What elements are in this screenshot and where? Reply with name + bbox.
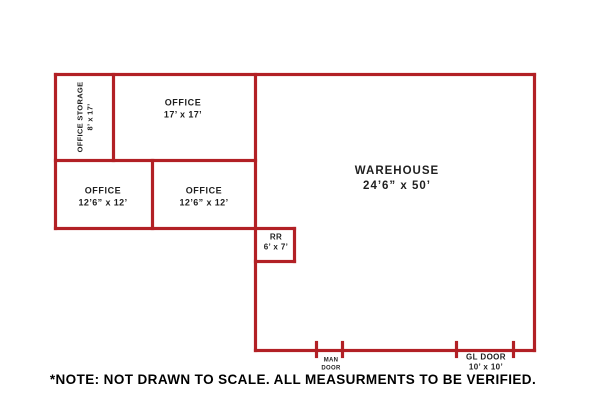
floor-plan-canvas: OFFICE STORAGE 8’ x 17’ OFFICE 17’ x 17’… [0, 0, 600, 400]
room-name: OFFICE [79, 185, 128, 197]
man-door-label: MAN DOOR [321, 358, 340, 373]
room-dims: 6’ x 7’ [264, 243, 289, 253]
room-label-office-storage: OFFICE STORAGE 8’ x 17’ [75, 82, 95, 153]
room-label-restroom: RR 6’ x 7’ [264, 233, 289, 254]
room-name: OFFICE STORAGE [75, 82, 85, 153]
wall-warehouse-bottom [254, 349, 536, 352]
wall-warehouse-left [254, 73, 257, 352]
room-dims: 12’6” x 12’ [180, 197, 229, 209]
wall-left [54, 73, 57, 230]
gl-door-tick-right [512, 341, 515, 358]
room-label-office-large: OFFICE 17’ x 17’ [164, 97, 202, 120]
man-door-tick-right [341, 341, 344, 358]
wall-warehouse-right [533, 73, 536, 352]
room-dims: 8’ x 17’ [85, 82, 95, 153]
room-name: WAREHOUSE [355, 164, 439, 179]
room-dims: 12’6” x 12’ [79, 197, 128, 209]
wall-storage-divider [112, 73, 115, 162]
room-name: OFFICE [164, 97, 202, 109]
room-dims: 17’ x 17’ [164, 109, 202, 121]
gl-door-line1: GL DOOR [466, 353, 506, 363]
room-name: RR [264, 233, 289, 243]
room-label-office-right: OFFICE 12’6” x 12’ [180, 185, 229, 208]
room-label-office-left: OFFICE 12’6” x 12’ [79, 185, 128, 208]
wall-top [54, 73, 536, 76]
wall-offices-bottom [54, 227, 296, 230]
wall-office-divider [151, 159, 154, 230]
room-name: OFFICE [180, 185, 229, 197]
note-text: *NOTE: NOT DRAWN TO SCALE. ALL MEASURMEN… [0, 372, 586, 387]
room-dims: 24’6” x 50’ [355, 179, 439, 194]
wall-rr-bottom [254, 260, 296, 263]
gl-door-tick-left [455, 341, 458, 358]
man-door-line1: MAN [321, 358, 340, 366]
wall-mid-horizontal [54, 159, 257, 162]
gl-door-label: GL DOOR 10’ x 10’ [466, 353, 506, 374]
wall-rr-right [293, 227, 296, 263]
room-label-warehouse: WAREHOUSE 24’6” x 50’ [355, 164, 439, 194]
man-door-tick-left [315, 341, 318, 358]
